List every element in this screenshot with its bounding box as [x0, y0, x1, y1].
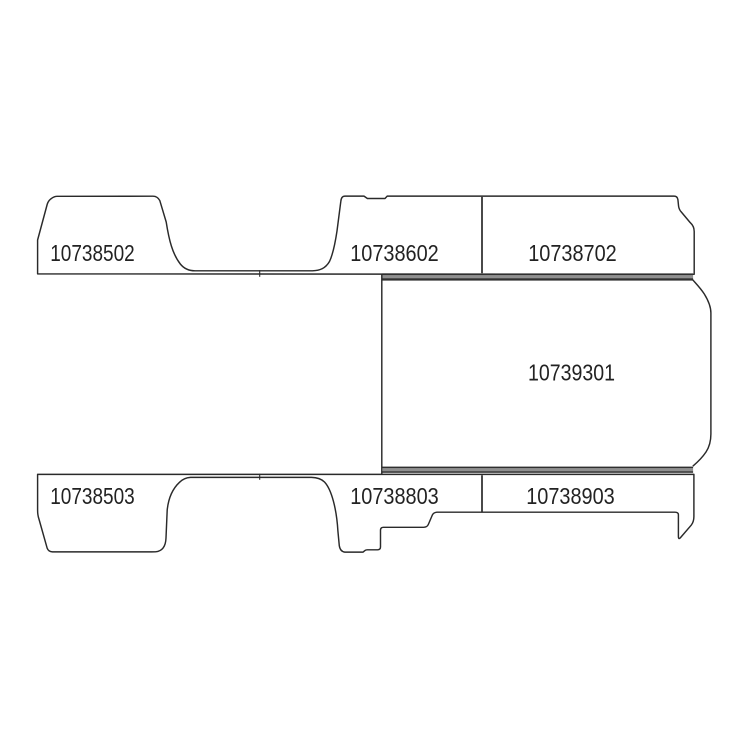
svg-text:10738503: 10738503	[50, 483, 135, 509]
svg-text:10738903: 10738903	[526, 483, 615, 509]
svg-text:10738502: 10738502	[50, 240, 135, 266]
svg-text:10739301: 10739301	[528, 359, 615, 385]
svg-text:10738702: 10738702	[528, 240, 617, 266]
svg-text:10738602: 10738602	[350, 240, 439, 266]
svg-text:10738803: 10738803	[350, 483, 439, 509]
